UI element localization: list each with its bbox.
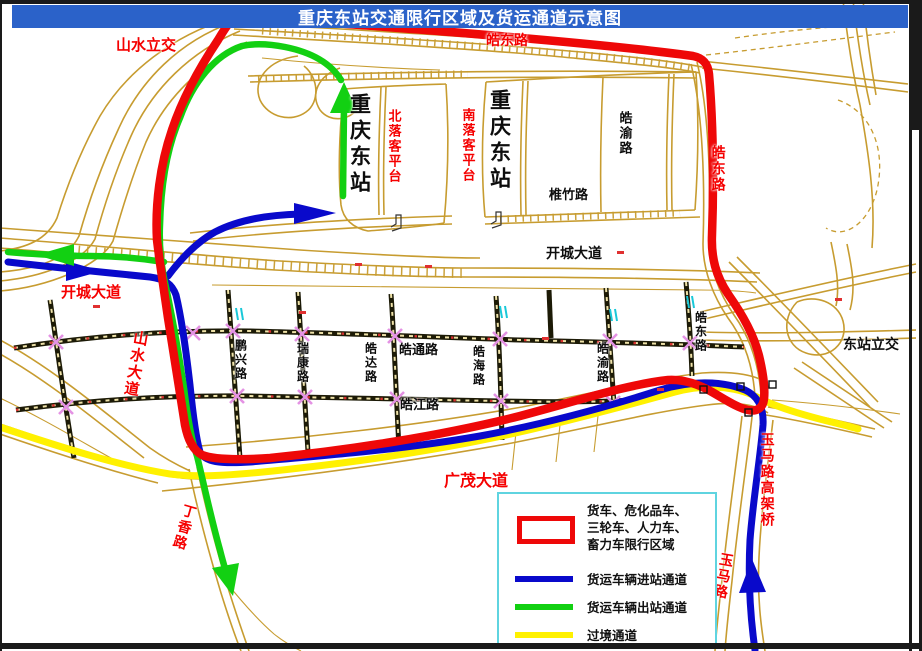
station-name-east-label: 重庆东站 (487, 89, 511, 193)
left-border (0, 0, 2, 651)
north-platform-label: 北落客平台 (385, 109, 400, 184)
legend: 货车、危化品车、 三轮车、人力车、 畜力车限行区域 货运车辆进站通道 货运车辆出… (497, 492, 717, 646)
transit-route-label: 过境通道 (587, 627, 637, 644)
street-grid (14, 282, 744, 458)
haoyu-road-north-label: 皓渝路 (616, 111, 631, 156)
page-title: 重庆东站交通限行区域及货运通道示意图 (298, 4, 622, 29)
restricted-zone-label-line2: 三轮车、人力车、 (587, 519, 687, 536)
qiaozhu-road-label: 椎竹路 (549, 189, 588, 204)
top-border (0, 0, 922, 4)
outbound-route-swatch (515, 604, 573, 610)
inbound-route-swatch (515, 576, 573, 582)
highway-network (0, 0, 916, 651)
guangmao-avenue-label: 广茂大道 (444, 472, 508, 490)
shanshui-interchange-label: 山水立交 (116, 37, 176, 54)
kaicheng-avenue-west-label: 开城大道 (61, 284, 121, 301)
dongzhan-interchange-label: 东站立交 (843, 338, 899, 354)
haojiang-road-label: 皓江路 (400, 399, 439, 414)
yuma-viaduct-label: 玉马路高架桥 (758, 432, 774, 528)
haodong-road-grid-label: 皓东路 (693, 311, 706, 353)
haotong-road-label: 皓通路 (399, 344, 438, 359)
ruikang-road-label: 瑞康路 (295, 342, 308, 384)
haodong-road-top-label: 皓东路 (486, 34, 528, 50)
bottom-border (0, 643, 922, 649)
pengxing-road-label: 鹏兴路 (233, 339, 246, 381)
haoyu-road-grid-label: 皓渝路 (595, 342, 608, 384)
south-platform-label: 南落客平台 (459, 108, 474, 183)
haoda-road-label: 皓达路 (363, 342, 376, 384)
outbound-route-label: 货运车辆出站通道 (587, 599, 687, 616)
restricted-zone-swatch (517, 516, 575, 544)
restricted-zone-label-line3: 畜力车限行区域 (587, 536, 675, 553)
kaicheng-avenue-east-label: 开城大道 (546, 247, 602, 263)
inbound-route-label: 货运车辆进站通道 (587, 571, 687, 588)
restricted-zone-label-line1: 货车、危化品车、 (587, 502, 687, 519)
station-name-west-label: 重庆东站 (347, 93, 371, 197)
title-bar: 重庆东站交通限行区域及货运通道示意图 (12, 5, 908, 28)
right-inner-line (909, 0, 912, 651)
transit-route-swatch (515, 632, 573, 638)
traffic-map-page: 山水立交皓东路皓东路重庆东站北落客平台重庆东站南落客平台皓渝路椎竹路开城大道开城… (0, 0, 922, 651)
haohai-road-label: 皓海路 (471, 345, 484, 387)
haodong-road-right-label: 皓东路 (709, 145, 725, 193)
map-canvas (0, 0, 922, 651)
